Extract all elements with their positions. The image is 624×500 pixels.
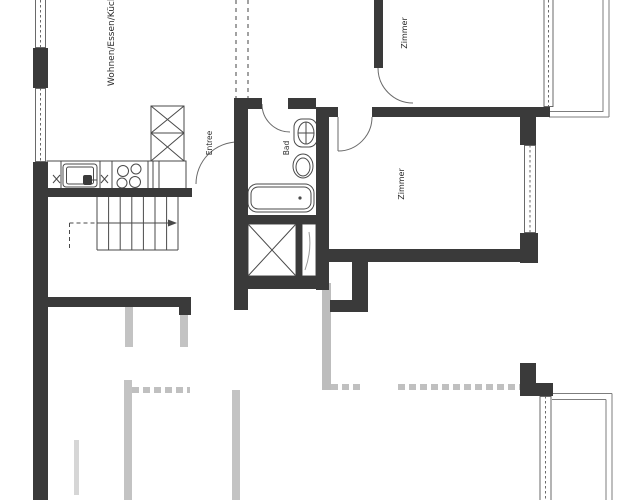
kitchen <box>47 106 186 190</box>
wall-bad-right <box>316 108 329 290</box>
wall-neighbor-entry-horiz <box>330 300 368 312</box>
shaft-box <box>302 224 316 276</box>
wall-divider-stub <box>316 107 338 117</box>
neighbor-wall-stub-1 <box>125 307 133 347</box>
wall-right-pier-mid <box>520 233 538 263</box>
neighbor-wall-vert-mid <box>232 390 240 500</box>
window-left-top <box>36 0 46 48</box>
neighbor-wall-faint <box>74 440 79 495</box>
dashed-opening-lines <box>236 0 248 100</box>
neighbor-walls <box>74 283 520 500</box>
staircase <box>70 197 179 250</box>
wall-zimmer-mid-bottom <box>318 249 537 262</box>
shaft-curve <box>305 232 310 270</box>
balcony-bottom-right <box>552 394 612 500</box>
window-right-bottom <box>540 396 551 500</box>
washbasin-icon <box>294 119 317 147</box>
wall-kitchen <box>46 188 192 197</box>
wall-rooms-divider <box>372 107 550 117</box>
room-label-bad: Bad <box>282 141 291 156</box>
closet-reduit <box>248 224 316 276</box>
kitchen-counter <box>47 161 186 190</box>
door-swing-zimmer-mid <box>338 117 372 151</box>
wall-bad-top-right <box>288 98 316 109</box>
neighbor-wall-vert-center <box>322 283 331 390</box>
stair-arrow-icon <box>168 220 177 227</box>
floor-plan: Wohnen/Essen/Küche Zimmer Zimmer Bad Ent… <box>0 0 624 500</box>
balconies <box>549 0 612 500</box>
doors <box>196 68 413 184</box>
door-swing-entree <box>196 142 238 184</box>
wall-right-pier-top <box>520 117 536 145</box>
wall-shaft-divider <box>296 224 302 276</box>
wall-stair-bottom <box>40 297 191 307</box>
wall-bottom-right-horiz <box>536 383 553 396</box>
room-label-zimmer-top: Zimmer <box>400 17 409 49</box>
floor-plan-drawing: Wohnen/Essen/Küche Zimmer Zimmer Bad Ent… <box>0 0 624 500</box>
wall-zimmer-top-left <box>374 0 383 68</box>
room-label-zimmer-mid: Zimmer <box>397 168 406 200</box>
room-label-living: Wohnen/Essen/Küche <box>107 0 117 86</box>
kitchen-sink-icon <box>63 164 97 187</box>
door-swing-bad <box>262 104 290 132</box>
balcony-top-right <box>549 0 609 117</box>
room-label-entree: Entree <box>205 130 214 155</box>
bathtub-icon <box>248 184 314 212</box>
closet-x-icon <box>248 224 296 276</box>
wall-left <box>33 162 48 500</box>
wall-stair-notch <box>179 307 191 315</box>
wall-left-pier <box>33 48 48 88</box>
neighbor-wall-vert-left <box>124 380 132 500</box>
door-swing-zimmer-top <box>378 68 413 103</box>
tall-cabinet-icon <box>151 106 184 161</box>
stove-icon <box>117 164 141 188</box>
window-right-top <box>544 0 553 107</box>
window-left-mid <box>36 88 46 162</box>
wall-bad-top-left <box>234 98 262 109</box>
wall-bottom-right-vert <box>520 363 536 396</box>
wall-corridor-bottom <box>234 276 320 289</box>
toilet-icon <box>293 154 313 178</box>
window-right-mid <box>525 145 536 233</box>
wall-bad-bottom <box>234 215 329 224</box>
bathroom <box>248 119 317 212</box>
